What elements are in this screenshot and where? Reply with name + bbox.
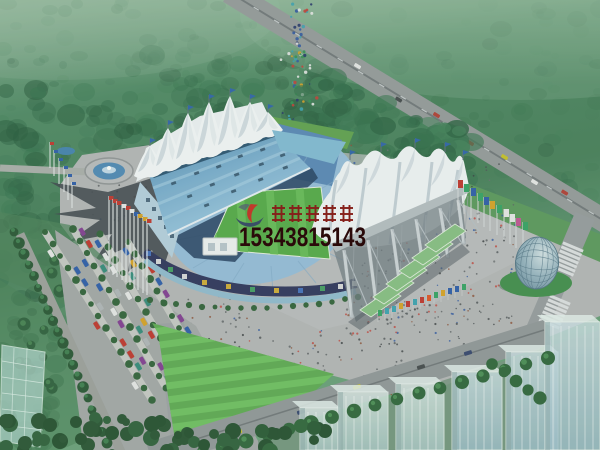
svg-text:15343815143: 15343815143 (239, 222, 366, 252)
